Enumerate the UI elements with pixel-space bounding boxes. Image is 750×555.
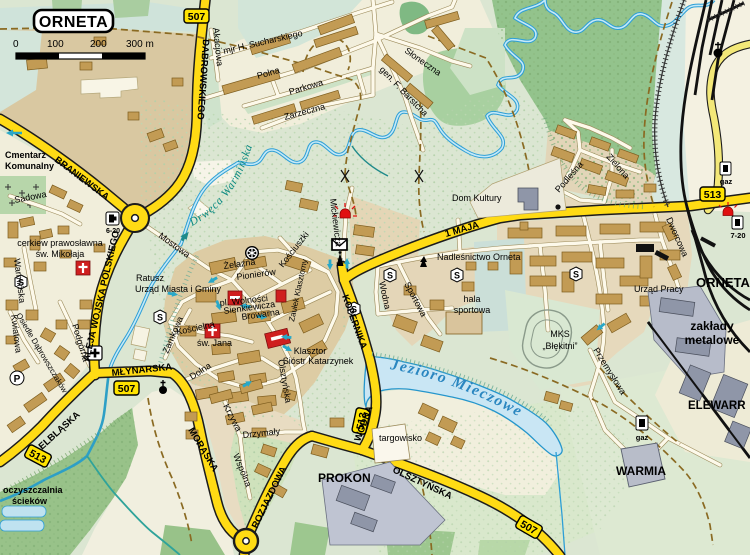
svg-text:św. Jana: św. Jana — [197, 338, 232, 348]
svg-text:zakłady: zakłady — [690, 319, 734, 333]
svg-text:targowisko: targowisko — [379, 433, 422, 443]
svg-text:gaz: gaz — [636, 433, 649, 442]
svg-text:513: 513 — [704, 189, 722, 201]
svg-text:300 m: 300 m — [126, 39, 154, 50]
svg-text:oczyszczalnia: oczyszczalnia — [3, 485, 64, 495]
svg-text:MKS: MKS — [550, 329, 570, 339]
svg-text:S: S — [573, 270, 579, 280]
svg-text:507: 507 — [118, 383, 136, 395]
svg-text:ORNETA: ORNETA — [39, 14, 108, 31]
svg-text:metalowe: metalowe — [685, 333, 740, 347]
svg-text:Klasztor: Klasztor — [294, 346, 327, 356]
svg-text:Sióstr Katarzynek: Sióstr Katarzynek — [283, 356, 354, 366]
svg-text:Urząd Miasta i Gminy: Urząd Miasta i Gminy — [135, 284, 222, 294]
svg-text:PROKON: PROKON — [318, 471, 371, 485]
svg-text:św. Mikołaja: św. Mikołaja — [36, 249, 85, 259]
svg-text:Urząd Pracy: Urząd Pracy — [634, 284, 684, 294]
svg-text:ścieków: ścieków — [12, 496, 48, 506]
svg-text:Dom Kultury: Dom Kultury — [452, 193, 502, 203]
svg-text:WARMIA: WARMIA — [616, 464, 666, 478]
svg-text:ELEWARR: ELEWARR — [688, 400, 746, 412]
svg-text:ORNETA: ORNETA — [696, 275, 750, 290]
svg-text:gaz: gaz — [720, 177, 733, 186]
svg-text:Cmentarz: Cmentarz — [5, 150, 47, 160]
svg-text:507: 507 — [188, 11, 206, 23]
svg-text:Ratusz: Ratusz — [136, 273, 165, 283]
svg-text:0: 0 — [13, 39, 19, 50]
svg-text:S: S — [157, 313, 163, 323]
svg-text:Komunalny: Komunalny — [5, 161, 54, 171]
svg-text:cerkiew prawosławna: cerkiew prawosławna — [17, 238, 103, 248]
svg-text:S: S — [454, 271, 460, 281]
svg-text:„Błękitni”: „Błękitni” — [542, 341, 577, 351]
svg-text:7-20: 7-20 — [730, 231, 745, 240]
svg-text:100: 100 — [47, 39, 64, 50]
svg-text:200: 200 — [90, 39, 107, 50]
svg-text:hala: hala — [463, 294, 480, 304]
svg-text:P: P — [14, 374, 21, 385]
svg-text:sportowa: sportowa — [454, 305, 491, 315]
svg-text:S: S — [387, 271, 393, 281]
svg-text:Nadleśnictwo Orneta: Nadleśnictwo Orneta — [437, 252, 521, 262]
